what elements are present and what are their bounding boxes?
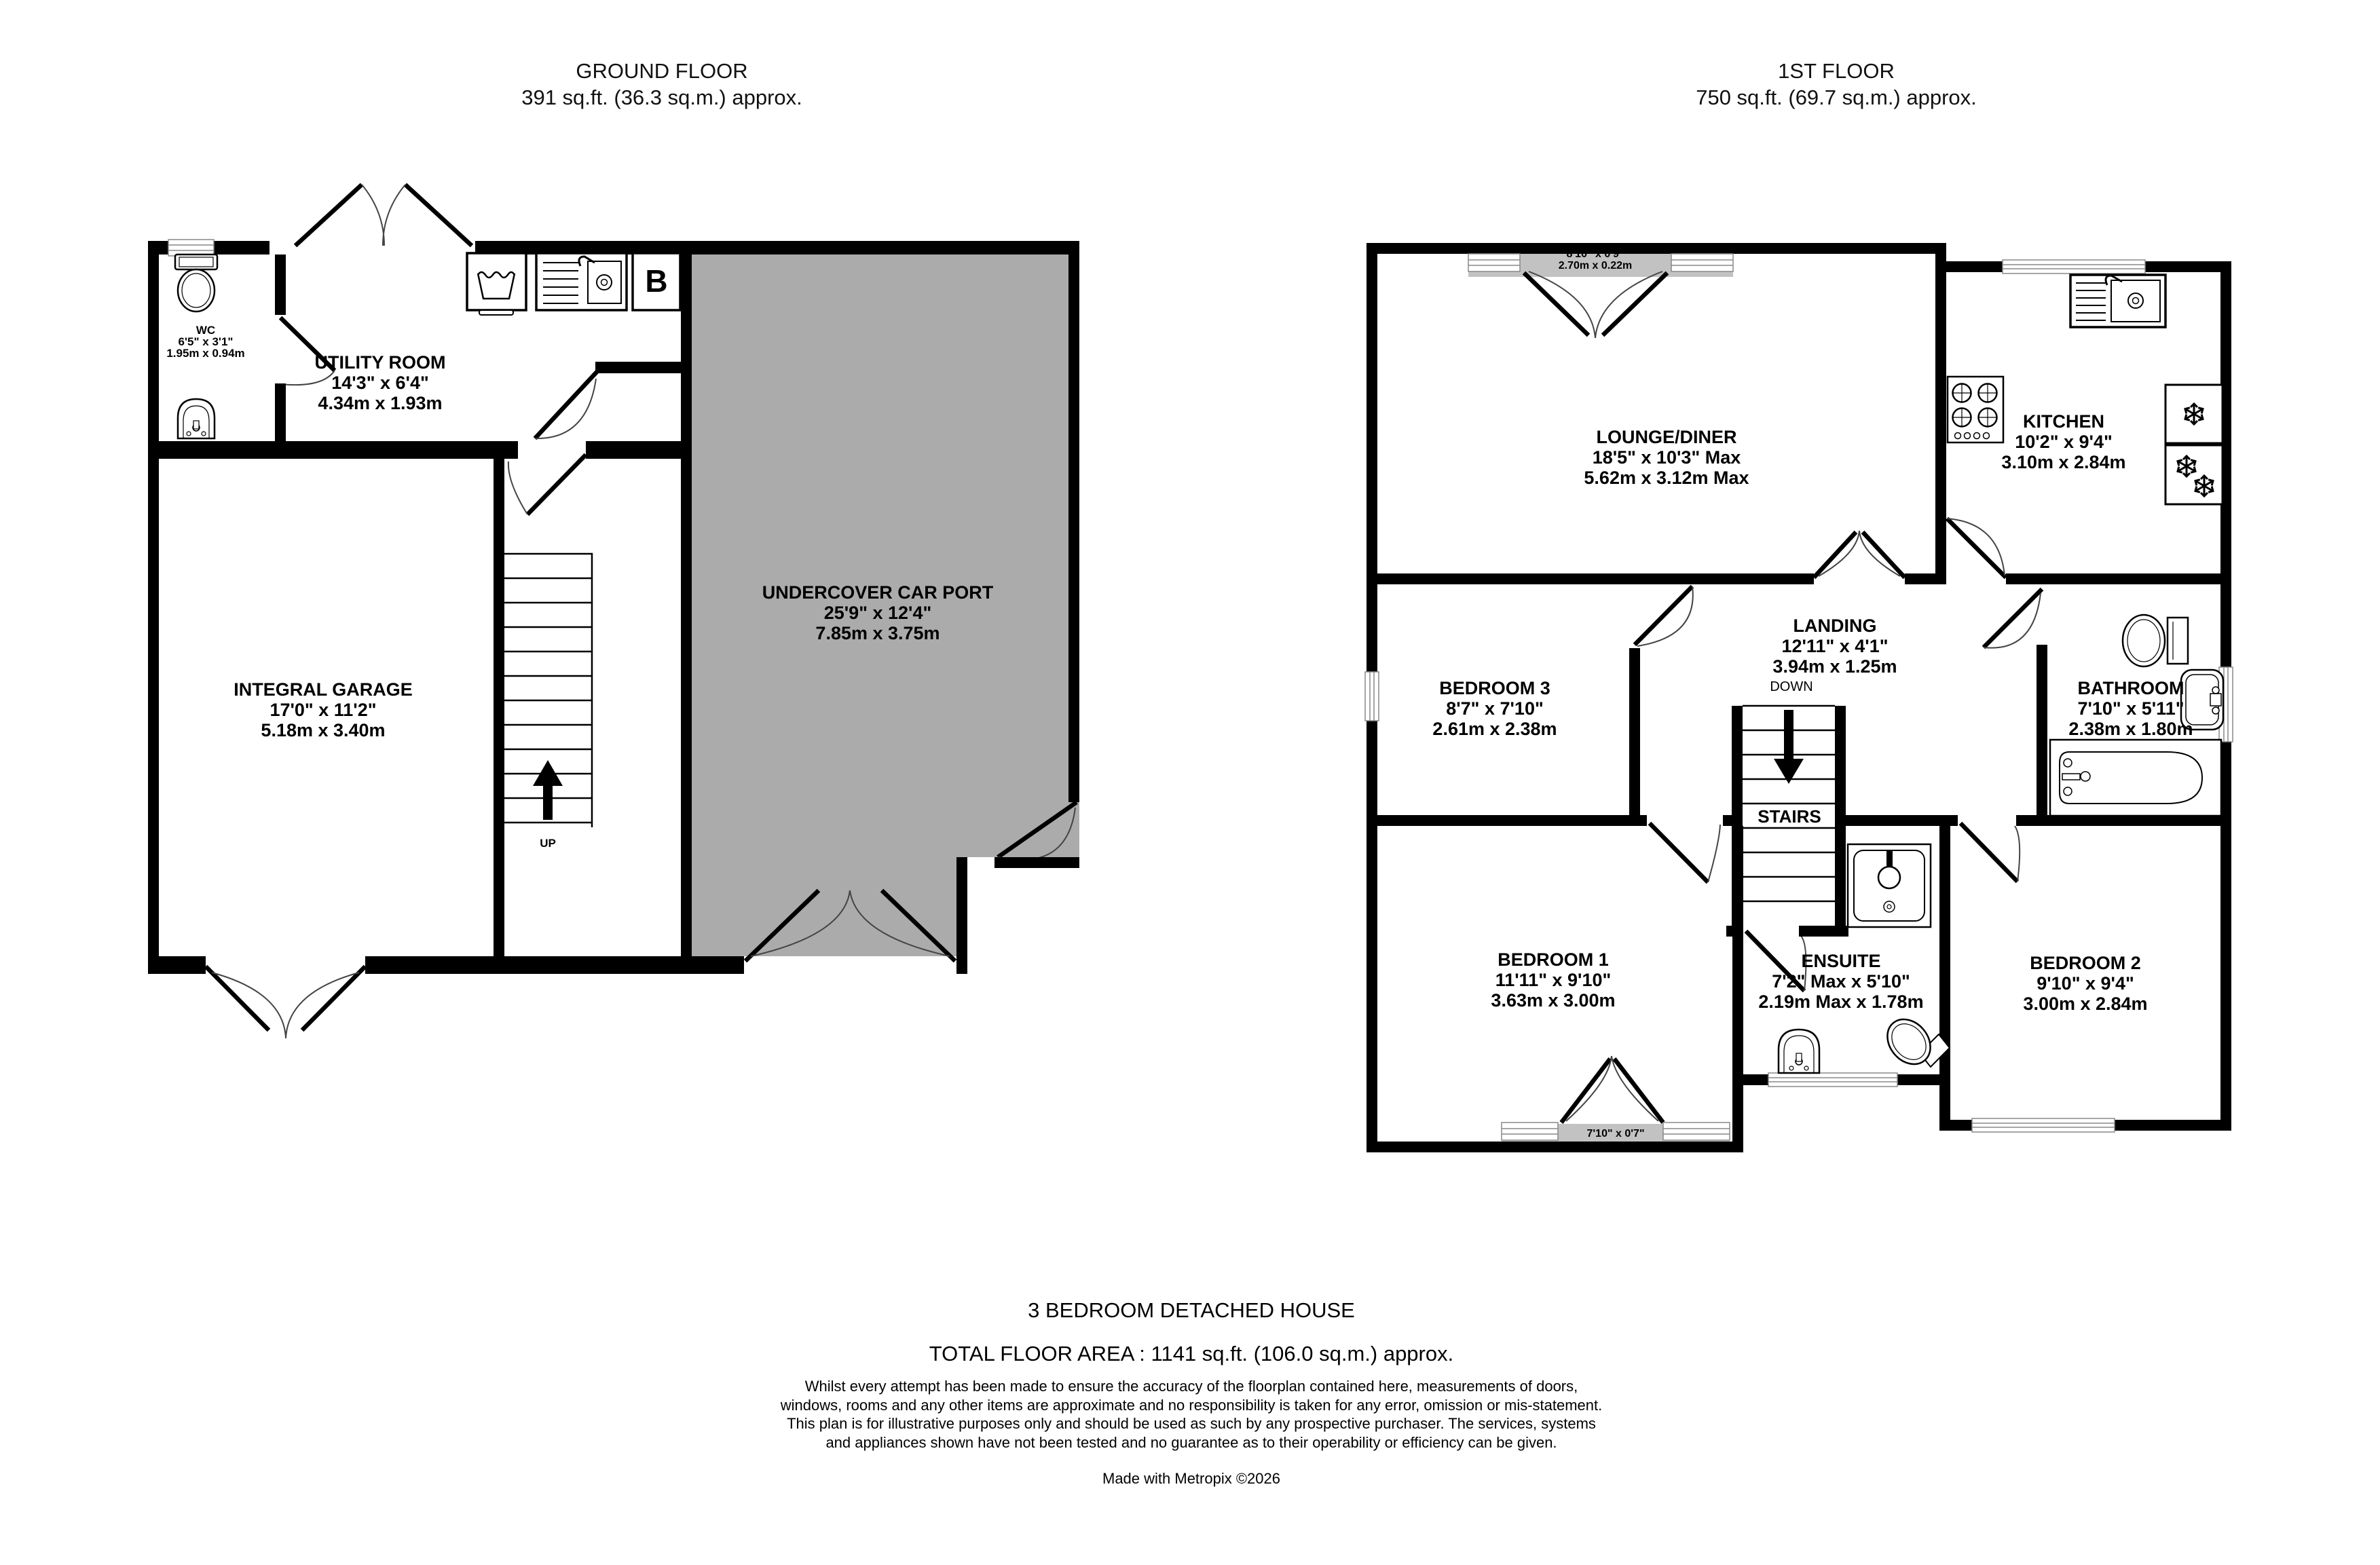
first-floor-area-text: 750 sq.ft. (69.7 sq.m.) approx. (1696, 84, 1977, 111)
room-label-garage: INTEGRAL GARAGE 17'0" x 11'2" 5.18m x 3.… (234, 679, 413, 740)
balcony-window-right (1663, 1123, 1730, 1140)
room-label-landing: LANDING 12'11" x 4'1" 3.94m x 1.25m (1772, 616, 1897, 677)
wc-toilet-icon (175, 254, 217, 312)
room-label-carport: UNDERCOVER CAR PORT 25'9" x 12'4" 7.85m … (762, 582, 994, 643)
bathroom-name: BATHROOM (2068, 678, 2193, 698)
landing-metric: 3.94m x 1.25m (1772, 656, 1897, 677)
ensuite-name: ENSUITE (1758, 951, 1923, 971)
up-label: UP (540, 837, 556, 850)
wc-window (168, 240, 214, 256)
balcony-window-left (1502, 1123, 1558, 1140)
first-floor-title-text: 1ST FLOOR (1696, 58, 1977, 84)
shower-icon (1848, 844, 1931, 927)
room-label-lounge: LOUNGE/DINER 18'5" x 10'3" Max 5.62m x 3… (1584, 427, 1749, 488)
room-label-wc: WC 6'5" x 3'1" 1.95m x 0.94m (166, 324, 244, 359)
bay-metric: 2.70m x 0.22m (1559, 260, 1633, 271)
ground-floor-area-text: 391 sq.ft. (36.3 sq.m.) approx. (521, 84, 802, 111)
bay-window-label: 8'10" x 0'9" 2.70m x 0.22m (1559, 248, 1633, 271)
carport-imperial: 25'9" x 12'4" (762, 603, 994, 623)
fridge-icon (2165, 385, 2223, 443)
kitchen-metric: 3.10m x 2.84m (2001, 452, 2125, 472)
room-label-kitchen: KITCHEN 10'2" x 9'4" 3.10m x 2.84m (2001, 411, 2125, 472)
garage-name: INTEGRAL GARAGE (234, 679, 413, 700)
bathroom-metric: 2.38m x 1.80m (2068, 719, 2193, 739)
carport-metric: 7.85m x 3.75m (762, 623, 994, 643)
disclaimer-text: Whilst every attempt has been made to en… (777, 1377, 1605, 1452)
total-floor-area: TOTAL FLOOR AREA : 1141 sq.ft. (106.0 sq… (929, 1342, 1453, 1366)
ensuite-toilet-icon (1878, 1011, 1950, 1072)
bedroom2-imperial: 9'10" x 9'4" (2023, 973, 2147, 994)
bathroom-imperial: 7'10" x 5'11" (2068, 698, 2193, 719)
kitchen-sink-icon (2070, 275, 2165, 327)
bedroom2-name: BEDROOM 2 (2023, 953, 2147, 973)
bay-imperial: 8'10" x 0'9" (1559, 248, 1633, 260)
bedroom3-window (1365, 672, 1379, 721)
garage-imperial: 17'0" x 11'2" (234, 700, 413, 720)
lounge-imperial: 18'5" x 10'3" Max (1584, 447, 1749, 468)
utility-name: UTILITY ROOM (315, 352, 446, 373)
property-type: 3 BEDROOM DETACHED HOUSE (1028, 1298, 1355, 1323)
carport-name: UNDERCOVER CAR PORT (762, 582, 994, 603)
kitchen-window (2003, 260, 2145, 274)
kitchen-name: KITCHEN (2001, 411, 2125, 432)
room-label-utility: UTILITY ROOM 14'3" x 6'4" 4.34m x 1.93m (315, 352, 446, 413)
kitchen-imperial: 10'2" x 9'4" (2001, 432, 2125, 452)
utility-imperial: 14'3" x 6'4" (315, 373, 446, 393)
first-floor-title: 1ST FLOOR 750 sq.ft. (69.7 sq.m.) approx… (1696, 58, 1977, 111)
ensuite-metric: 2.19m Max x 1.78m (1758, 992, 1923, 1012)
utility-metric: 4.34m x 1.93m (315, 393, 446, 413)
bedroom1-imperial: 11'11" x 9'10" (1491, 970, 1615, 990)
down-label: DOWN (1770, 679, 1812, 695)
down-arrow-icon (1774, 710, 1804, 784)
ensuite-imperial: 7'2" Max x 5'10" (1758, 971, 1923, 992)
lounge-name: LOUNGE/DINER (1584, 427, 1749, 447)
freezer-icon (2165, 445, 2223, 504)
room-label-bedroom3: BEDROOM 3 8'7" x 7'10" 2.61m x 2.38m (1432, 678, 1557, 739)
wc-metric: 1.95m x 0.94m (166, 347, 244, 359)
ground-floor-title: GROUND FLOOR 391 sq.ft. (36.3 sq.m.) app… (521, 58, 802, 111)
bay-window-right (1671, 254, 1733, 271)
boiler-label: B (645, 263, 667, 299)
balcony-window-label: 7'10" x 0'7" (1586, 1128, 1644, 1139)
room-label-bedroom1: BEDROOM 1 11'11" x 9'10" 3.63m x 3.00m (1491, 949, 1615, 1011)
garage-metric: 5.18m x 3.40m (234, 720, 413, 740)
bedroom3-imperial: 8'7" x 7'10" (1432, 698, 1557, 719)
floorplan-page: GROUND FLOOR 391 sq.ft. (36.3 sq.m.) app… (0, 0, 2380, 1565)
landing-name: LANDING (1772, 616, 1897, 636)
washing-machine-icon (467, 253, 526, 315)
bedroom1-name: BEDROOM 1 (1491, 949, 1615, 970)
stairs-label: STAIRS (1758, 806, 1821, 827)
wc-name: WC (166, 324, 244, 336)
bath-icon (2050, 740, 2221, 816)
room-label-bedroom2: BEDROOM 2 9'10" x 9'4" 3.00m x 2.84m (2023, 953, 2147, 1014)
bathroom-toilet-icon (2123, 615, 2188, 666)
room-label-ensuite: ENSUITE 7'2" Max x 5'10" 2.19m Max x 1.7… (1758, 951, 1923, 1012)
ensuite-sink-icon (1779, 1030, 1819, 1073)
credit-text: Made with Metropix ©2026 (1102, 1470, 1280, 1488)
lounge-metric: 5.62m x 3.12m Max (1584, 468, 1749, 488)
bedroom1-metric: 3.63m x 3.00m (1491, 990, 1615, 1011)
up-arrow-icon (533, 760, 563, 820)
bedroom2-metric: 3.00m x 2.84m (2023, 994, 2147, 1014)
bedroom3-metric: 2.61m x 2.38m (1432, 719, 1557, 739)
hob-icon (1948, 377, 2003, 442)
room-label-bathroom: BATHROOM 7'10" x 5'11" 2.38m x 1.80m (2068, 678, 2193, 739)
landing-imperial: 12'11" x 4'1" (1772, 636, 1897, 656)
wc-imperial: 6'5" x 3'1" (166, 336, 244, 347)
utility-sink-icon (536, 253, 627, 310)
bedroom3-name: BEDROOM 3 (1432, 678, 1557, 698)
bay-window-left (1468, 254, 1520, 271)
ground-floor-title-text: GROUND FLOOR (521, 58, 802, 84)
balcony-imperial: 7'10" x 0'7" (1586, 1128, 1644, 1139)
bedroom2-window (1972, 1118, 2115, 1132)
ensuite-window (1768, 1073, 1897, 1087)
wc-sink-icon (178, 399, 215, 438)
